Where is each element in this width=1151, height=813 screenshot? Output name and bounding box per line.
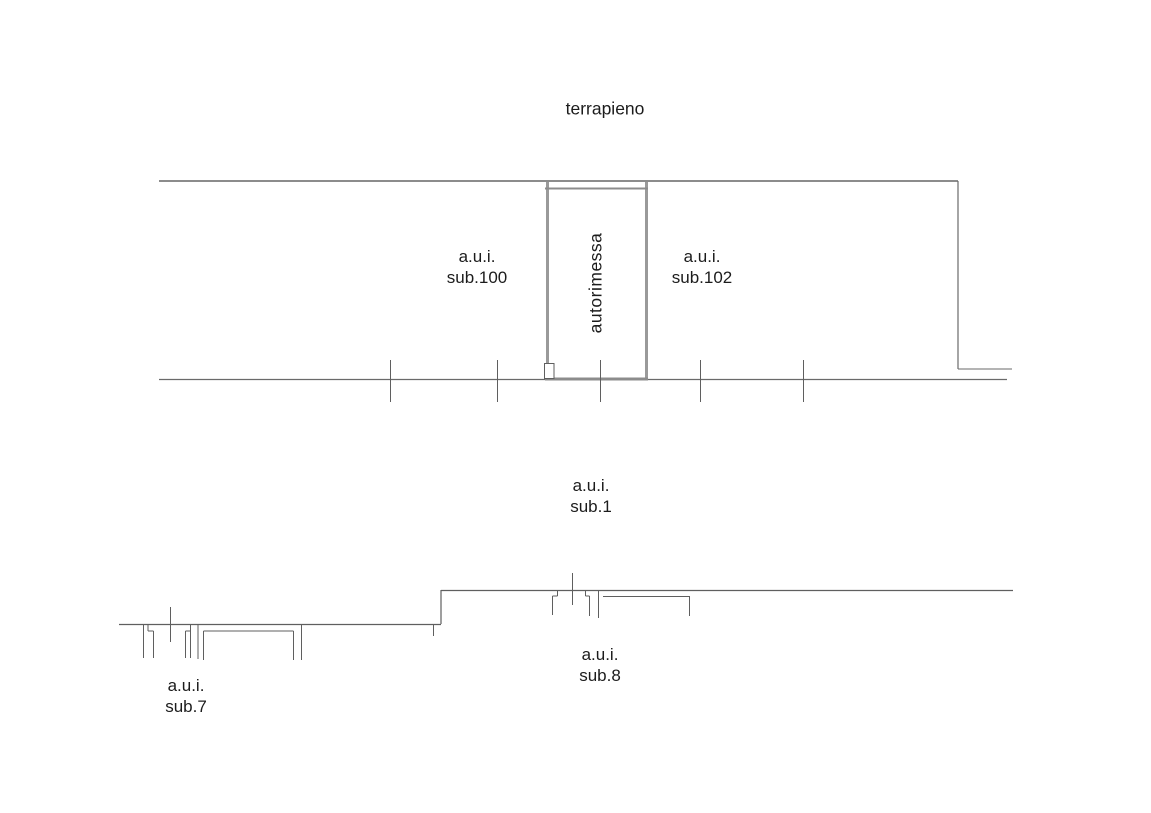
sub7-label-line2: sub.7 [165,696,207,717]
terrapieno-label: terrapieno [566,99,645,120]
garage-door-notch [545,364,555,379]
sub102-label-line1: a.u.i. [672,246,733,267]
sub102-label: a.u.i. sub.102 [672,246,733,288]
sub102-label-line2: sub.102 [672,267,733,288]
sub7-label: a.u.i. sub.7 [165,675,207,717]
sub1-label: a.u.i. sub.1 [570,475,612,517]
sub8-label-line1: a.u.i. [579,644,621,665]
sub7-label-line1: a.u.i. [165,675,207,696]
sub8-label: a.u.i. sub.8 [579,644,621,686]
sub1-label-line1: a.u.i. [570,475,612,496]
autorimessa-label: autorimessa [586,233,607,334]
sub100-label-line1: a.u.i. [447,246,508,267]
sub8-label-line2: sub.8 [579,665,621,686]
sub1-label-line2: sub.1 [570,496,612,517]
cadastral-elevation-drawing: terrapieno a.u.i. sub.100 autorimessa a.… [0,0,1151,813]
sub100-label: a.u.i. sub.100 [447,246,508,288]
sub100-label-line2: sub.100 [447,267,508,288]
